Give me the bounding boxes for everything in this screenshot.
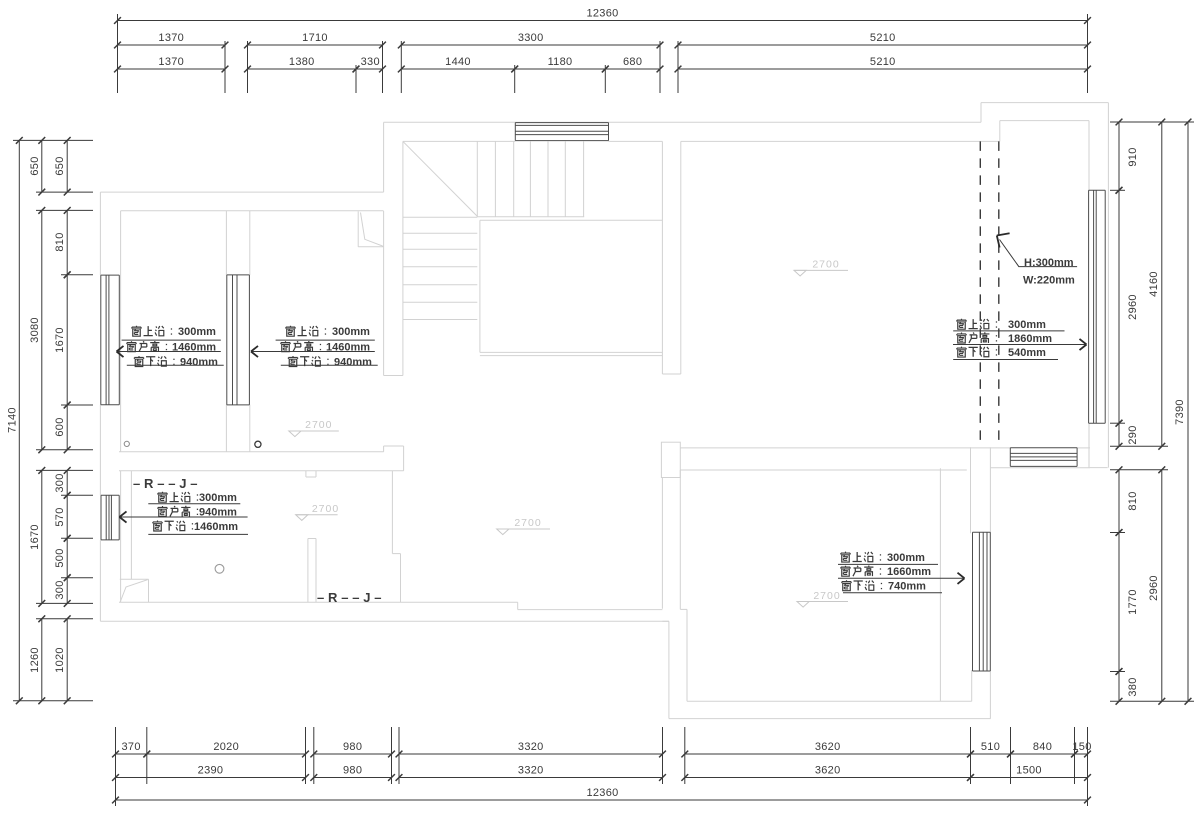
svg-text:980: 980	[343, 741, 362, 753]
svg-text:2700: 2700	[812, 259, 839, 271]
svg-text:1670: 1670	[54, 327, 66, 353]
svg-text:300mm: 300mm	[1008, 319, 1046, 331]
svg-text:7140: 7140	[7, 407, 19, 433]
svg-text:370: 370	[122, 741, 141, 753]
svg-text:300: 300	[54, 580, 66, 599]
svg-text:290: 290	[1127, 425, 1139, 444]
svg-text:940mm: 940mm	[334, 356, 372, 368]
svg-text:330: 330	[361, 56, 380, 68]
svg-text:3620: 3620	[815, 741, 841, 753]
svg-text:650: 650	[54, 156, 66, 175]
svg-text:740mm: 740mm	[888, 581, 926, 593]
svg-text:840: 840	[1033, 741, 1052, 753]
svg-text:3620: 3620	[815, 765, 841, 777]
svg-text:300: 300	[54, 473, 66, 492]
svg-text:2960: 2960	[1148, 575, 1160, 601]
svg-text:2390: 2390	[198, 765, 224, 777]
svg-text:–R––J–: –R––J–	[133, 476, 201, 491]
svg-text:1710: 1710	[302, 32, 328, 44]
svg-text:680: 680	[623, 56, 642, 68]
svg-text:W:220mm: W:220mm	[1023, 275, 1075, 287]
svg-text:1860mm: 1860mm	[1008, 333, 1052, 345]
svg-text:–R––J–: –R––J–	[317, 590, 385, 605]
svg-text:300mm: 300mm	[887, 552, 925, 564]
svg-text:980: 980	[343, 765, 362, 777]
svg-text:2700: 2700	[305, 419, 332, 431]
svg-text:2700: 2700	[312, 503, 339, 515]
svg-text:H:300mm: H:300mm	[1024, 257, 1074, 269]
svg-text:4160: 4160	[1148, 271, 1160, 297]
svg-text:600: 600	[54, 417, 66, 436]
svg-text:650: 650	[29, 156, 41, 175]
svg-text:910: 910	[1127, 147, 1139, 166]
svg-text:510: 510	[981, 741, 1000, 753]
svg-text:1460mm: 1460mm	[194, 521, 238, 533]
svg-text:2960: 2960	[1127, 294, 1139, 320]
svg-text:940mm: 940mm	[180, 356, 218, 368]
svg-text:1440: 1440	[445, 56, 471, 68]
svg-text:2700: 2700	[813, 590, 840, 602]
svg-text:500: 500	[54, 548, 66, 567]
svg-text:1500: 1500	[1016, 765, 1042, 777]
svg-text:150: 150	[1072, 741, 1091, 753]
svg-text:7390: 7390	[1174, 399, 1186, 425]
svg-text:1670: 1670	[29, 524, 41, 550]
svg-text:1770: 1770	[1127, 589, 1139, 615]
svg-text:540mm: 540mm	[1008, 347, 1046, 359]
svg-text:3320: 3320	[518, 765, 544, 777]
svg-text:2700: 2700	[514, 517, 541, 529]
svg-text:12360: 12360	[586, 8, 618, 20]
svg-text:12360: 12360	[586, 787, 618, 799]
svg-text:5210: 5210	[870, 56, 896, 68]
svg-text:1020: 1020	[54, 647, 66, 673]
svg-text:3320: 3320	[518, 741, 544, 753]
svg-text:3300: 3300	[518, 32, 544, 44]
svg-text:810: 810	[1127, 491, 1139, 510]
svg-text:1370: 1370	[158, 56, 184, 68]
svg-text:810: 810	[54, 232, 66, 251]
svg-text:380: 380	[1127, 677, 1139, 696]
svg-text:300mm: 300mm	[199, 492, 237, 504]
svg-text:1370: 1370	[158, 32, 184, 44]
svg-text:300mm: 300mm	[178, 326, 216, 338]
svg-text:1380: 1380	[289, 56, 315, 68]
svg-text:1660mm: 1660mm	[887, 566, 931, 578]
svg-text:3080: 3080	[29, 317, 41, 343]
svg-text:1260: 1260	[29, 647, 41, 673]
svg-text:5210: 5210	[870, 32, 896, 44]
svg-text:300mm: 300mm	[332, 326, 370, 338]
svg-text:1180: 1180	[548, 56, 573, 68]
svg-text:570: 570	[54, 507, 66, 526]
svg-text:2020: 2020	[213, 741, 239, 753]
